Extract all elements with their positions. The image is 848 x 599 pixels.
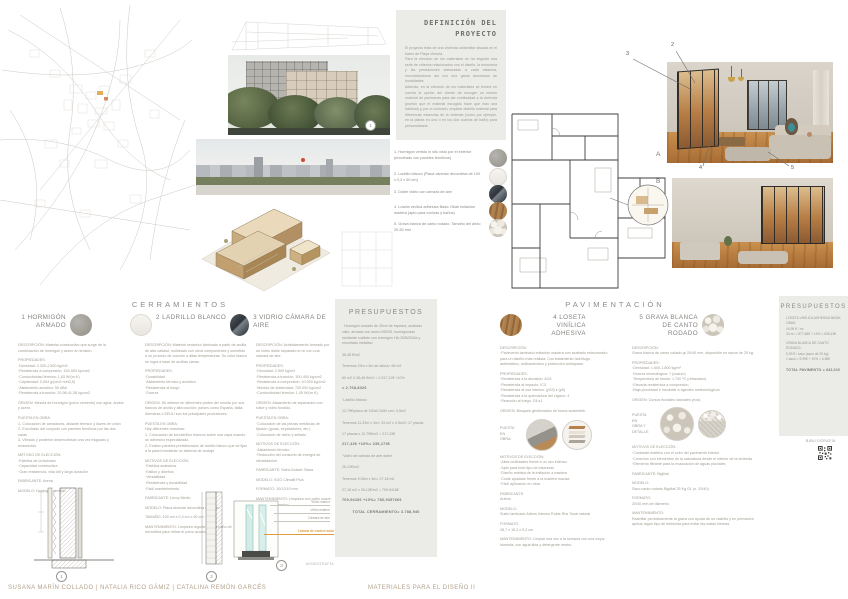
legend-item-1: 1. Hormigón vertido in situ visto por el… <box>394 150 482 161</box>
bibliografia-label: BIBLIOGRAFÍA <box>806 439 836 443</box>
material-puesta: PUESTA EN OBRA: ·Colocación de las pieza… <box>256 416 332 438</box>
material-column-hormigon: 1 HORMIGÓN ARMADO DESCRIPCIÓN: Material … <box>18 314 124 499</box>
material-props: PROPIEDADES: ·Densidad: 2.500 kg/m3 ·Res… <box>256 364 332 397</box>
footer-course: MATERIALES PARA EL DISEÑO II <box>368 585 475 591</box>
material-title: 3 VIDRIO CÁMARA DE AIRE <box>253 314 332 330</box>
annotation-lines <box>600 28 848 178</box>
tower <box>326 159 333 179</box>
detail-section-ladrillo <box>192 488 232 568</box>
budget-vidrio: ·Vidrio de cámara de aire doble 26,12€/m… <box>342 454 430 494</box>
interior-render-b <box>672 178 833 268</box>
circle-number: 1 <box>60 574 63 579</box>
layer-core <box>568 431 585 434</box>
material-formato: FORMATO: 28,7 x 19,2 x 0,2 cm <box>500 522 610 533</box>
foreground <box>196 185 390 195</box>
glass-label-interior: Vidrio interior <box>270 499 330 506</box>
material-origen: ORIGEN: Aislamiento de separación con sí… <box>256 401 332 412</box>
budget-vidrio-total: 709,9416€ +10%= 780,935766€ <box>342 498 430 502</box>
window-wall <box>761 186 825 244</box>
material-mantenimiento: MANTENIMIENTO: Limpiar una vez a la sema… <box>500 537 610 548</box>
annotation-2: 2 <box>671 42 674 48</box>
legend-item-5: 5. Grava blanca de canto rodado. Tamaño … <box>394 222 482 233</box>
poster-board: 1 DEFINICIÓN D <box>0 0 848 599</box>
glass-unit-diagram: Vidrio interior Vidrio exterior Cámara d… <box>232 497 338 567</box>
material-motivos: MOTIVOS DE ELECCIÓN: ·Aislamiento térmic… <box>256 442 332 464</box>
material-column-grava: 5 GRAVA BLANCA DE CANTO RODADO DESCRIPCI… <box>632 314 760 532</box>
material-desc: DESCRIPCIÓN: Acristalamiento formado por… <box>256 343 332 360</box>
plant <box>724 236 732 246</box>
circle-number: 2 <box>210 574 213 579</box>
material-puesta: PUESTA EN OBRA: 1- Colocación de armadur… <box>18 416 124 449</box>
material-modelo: MODELO: Suelo laminado Artens Intenso Ro… <box>500 507 610 518</box>
layer-backing <box>568 440 585 443</box>
glass-label-camara: Cámara de aire <box>274 515 330 522</box>
location-dot <box>301 158 305 162</box>
material-title: 4 LOSETA VINÍLICA ADHESIVA <box>526 314 586 339</box>
material-column-loseta: 4 LOSETA VINÍLICA ADHESIVA DESCRIPCIÓN: … <box>500 314 610 552</box>
material-title: 2 LADRILLO BLANCO <box>156 314 226 322</box>
sofa <box>738 251 788 264</box>
budget-total-cerramiento: TOTAL CERRAMIENTO= 3.788,94€ <box>342 510 430 514</box>
layers-diagram-icon <box>562 420 592 450</box>
kitchen-island <box>680 242 720 260</box>
budget-loseta: LOSETA VINÍLICA ADHESIVA BASIK OBAK: 16,… <box>786 316 841 337</box>
legend-item-4: 4. Loseta vinílica adhesiva Basic Obak i… <box>394 205 482 216</box>
material-marker-1: 1 <box>365 120 376 131</box>
material-modelo: MODELO: SGG Climalit Plus <box>256 478 332 484</box>
render-a-label: A <box>656 151 660 158</box>
material-motivos: MÉTODO DE ELECCIÓN: ·Estética de la fach… <box>18 453 124 475</box>
gravel-swatch-icon <box>702 314 724 336</box>
budget-grava: GRAVA BLANCA DE CANTO RODADO: 5,99 € / s… <box>786 341 841 362</box>
detail-section-hormigon <box>30 482 118 570</box>
circle-number: 3 <box>280 563 283 568</box>
elevation-sketch <box>228 14 390 56</box>
render-b-label: B <box>656 178 660 185</box>
budget-ladrillo-total: 217,43€ +10%= 239,173€ <box>342 442 430 446</box>
material-column-vidrio: 3 VIDRIO CÁMARA DE AIRE DESCRIPCIÓN: Acr… <box>230 314 332 512</box>
material-origen: ORIGEN: Bosques gestionados de forma sos… <box>500 409 610 415</box>
material-fabricante: FABRICANTE: Saint-Gobain Glass <box>256 468 332 474</box>
presupuestos-cerramientos-panel: PRESUPUESTOS · Hormigón armado de 30cm d… <box>335 299 437 557</box>
material-motivos: MOTIVOS DE ELECCIÓN: ·Altas cualidades f… <box>500 455 610 488</box>
panorama-photo <box>196 139 390 195</box>
budget-total-pavimento: TOTAL PAVIMENTO = 642,01€ <box>786 368 841 372</box>
annotation-3: 3 <box>626 51 629 57</box>
detail-number-2: 2 <box>206 571 217 582</box>
legend-item-2: 2. Ladrillo blanco (Placa alveolar decor… <box>394 172 482 183</box>
puesta-en-obra-label: PUESTA EN OBRA: <box>500 426 522 443</box>
material-props: PROPIEDADES: ·Densidad: 2.300-2.500 kg/m… <box>18 358 124 397</box>
gravel-section-detail-icon <box>698 410 726 438</box>
white-brick-swatch-icon <box>130 314 152 336</box>
material-mantenimiento: MANTENIMIENTO: Rastrillar periódicamente… <box>632 511 760 528</box>
map-highlight <box>97 91 103 95</box>
concrete-swatch-icon <box>70 314 92 336</box>
definition-body: El proyecto trata de una vivienda unifam… <box>405 46 497 129</box>
city-map <box>0 0 195 295</box>
panel-title: PRESUPUESTOS <box>779 304 848 310</box>
presupuestos-pavimentacion-panel: PRESUPUESTOS LOSETA VINÍLICA ADHESIVA BA… <box>779 296 848 436</box>
layer-wood <box>568 426 585 429</box>
installation-photo-icon <box>526 419 558 451</box>
material-title: 1 HORMIGÓN ARMADO <box>18 314 66 330</box>
budget-ladrillo: ·Ladrillo blanco: 12,79€/placa de 100x0,… <box>342 398 430 438</box>
material-desc: DESCRIPCIÓN: Grava blanca de canto rodad… <box>632 346 760 357</box>
annotation-4: 4 <box>699 165 702 171</box>
footer-authors: SUSANA MARÍN COLLADO | NATALIA RICO GÁMI… <box>8 585 266 591</box>
qr-code <box>818 446 832 460</box>
cerramientos-heading: CERRAMIENTOS <box>110 300 250 309</box>
panel-title: PRESUPUESTOS <box>335 309 437 316</box>
material-fabricante: FABRICANTE: BigMat <box>632 472 760 478</box>
material-formato: FORMATO: 10/12/10 mm <box>256 487 332 493</box>
monografia-label: MONOGRAFÍA <box>306 562 334 566</box>
glass-label-lamina: Lámina de control solar <box>264 528 334 535</box>
marker-number: 1 <box>369 123 372 128</box>
material-props: PROPIEDADES: ·Densidad: 1.600-1.800 kg/m… <box>632 361 760 394</box>
pavimentacion-heading: PAVIMENTACIÓN <box>545 300 685 309</box>
project-definition-panel: DEFINICIÓN DEL PROYECTO El proyecto trat… <box>396 10 506 140</box>
gravel-photo-icon <box>660 407 694 441</box>
budget-hormigon: · Hormigón armado de 30cm de espesor, ac… <box>342 324 430 382</box>
material-origen: ORIGEN: Cursos fluviales naturales (ríos… <box>632 398 760 404</box>
budget-hormigon-total: = 2.768,832€ <box>342 386 430 390</box>
tree-line <box>196 177 390 185</box>
detail-number-3: 3 <box>276 560 287 571</box>
material-motivos: MOTIVOS DE ELECCIÓN: ·Contraste estético… <box>632 445 760 467</box>
plan-fragment <box>338 228 396 290</box>
annotation-5: 5 <box>791 165 794 171</box>
material-modelo: MODELO: Saco canto rodado BigMat 25 Kg G… <box>632 481 760 492</box>
glass-swatch-icon <box>230 314 249 336</box>
wood-swatch-icon <box>500 314 522 336</box>
tower <box>254 157 263 179</box>
glass-label-exterior: Vidrio exterior <box>274 507 330 514</box>
material-fabricante: FABRICANTE: Artens <box>500 492 610 503</box>
material-formato: FORMATO: 20/40 mm de diámetro <box>632 496 760 507</box>
legend-item-3: 3. Doble vidrio con cámara de aire <box>394 190 482 196</box>
puesta-en-obra-label: PUESTA EN OBRA Y DETALLE: <box>632 413 656 435</box>
axonometric-drawing <box>198 197 333 292</box>
material-desc: DESCRIPCIÓN: ·Pavimento laminado imitaci… <box>500 346 610 368</box>
material-desc: DESCRIPCIÓN: Material constructivo que s… <box>18 343 124 354</box>
material-title: 5 GRAVA BLANCA DE CANTO RODADO <box>632 314 698 339</box>
detail-number-1: 1 <box>56 571 67 582</box>
material-props: PROPIEDADES: ·Resistencia a la abrasión:… <box>500 372 610 405</box>
definition-title: DEFINICIÓN DEL PROYECTO <box>405 18 497 39</box>
material-origen: ORIGEN: Mezcla de hormigón (polvo cement… <box>18 401 124 412</box>
layer-base <box>568 435 585 438</box>
